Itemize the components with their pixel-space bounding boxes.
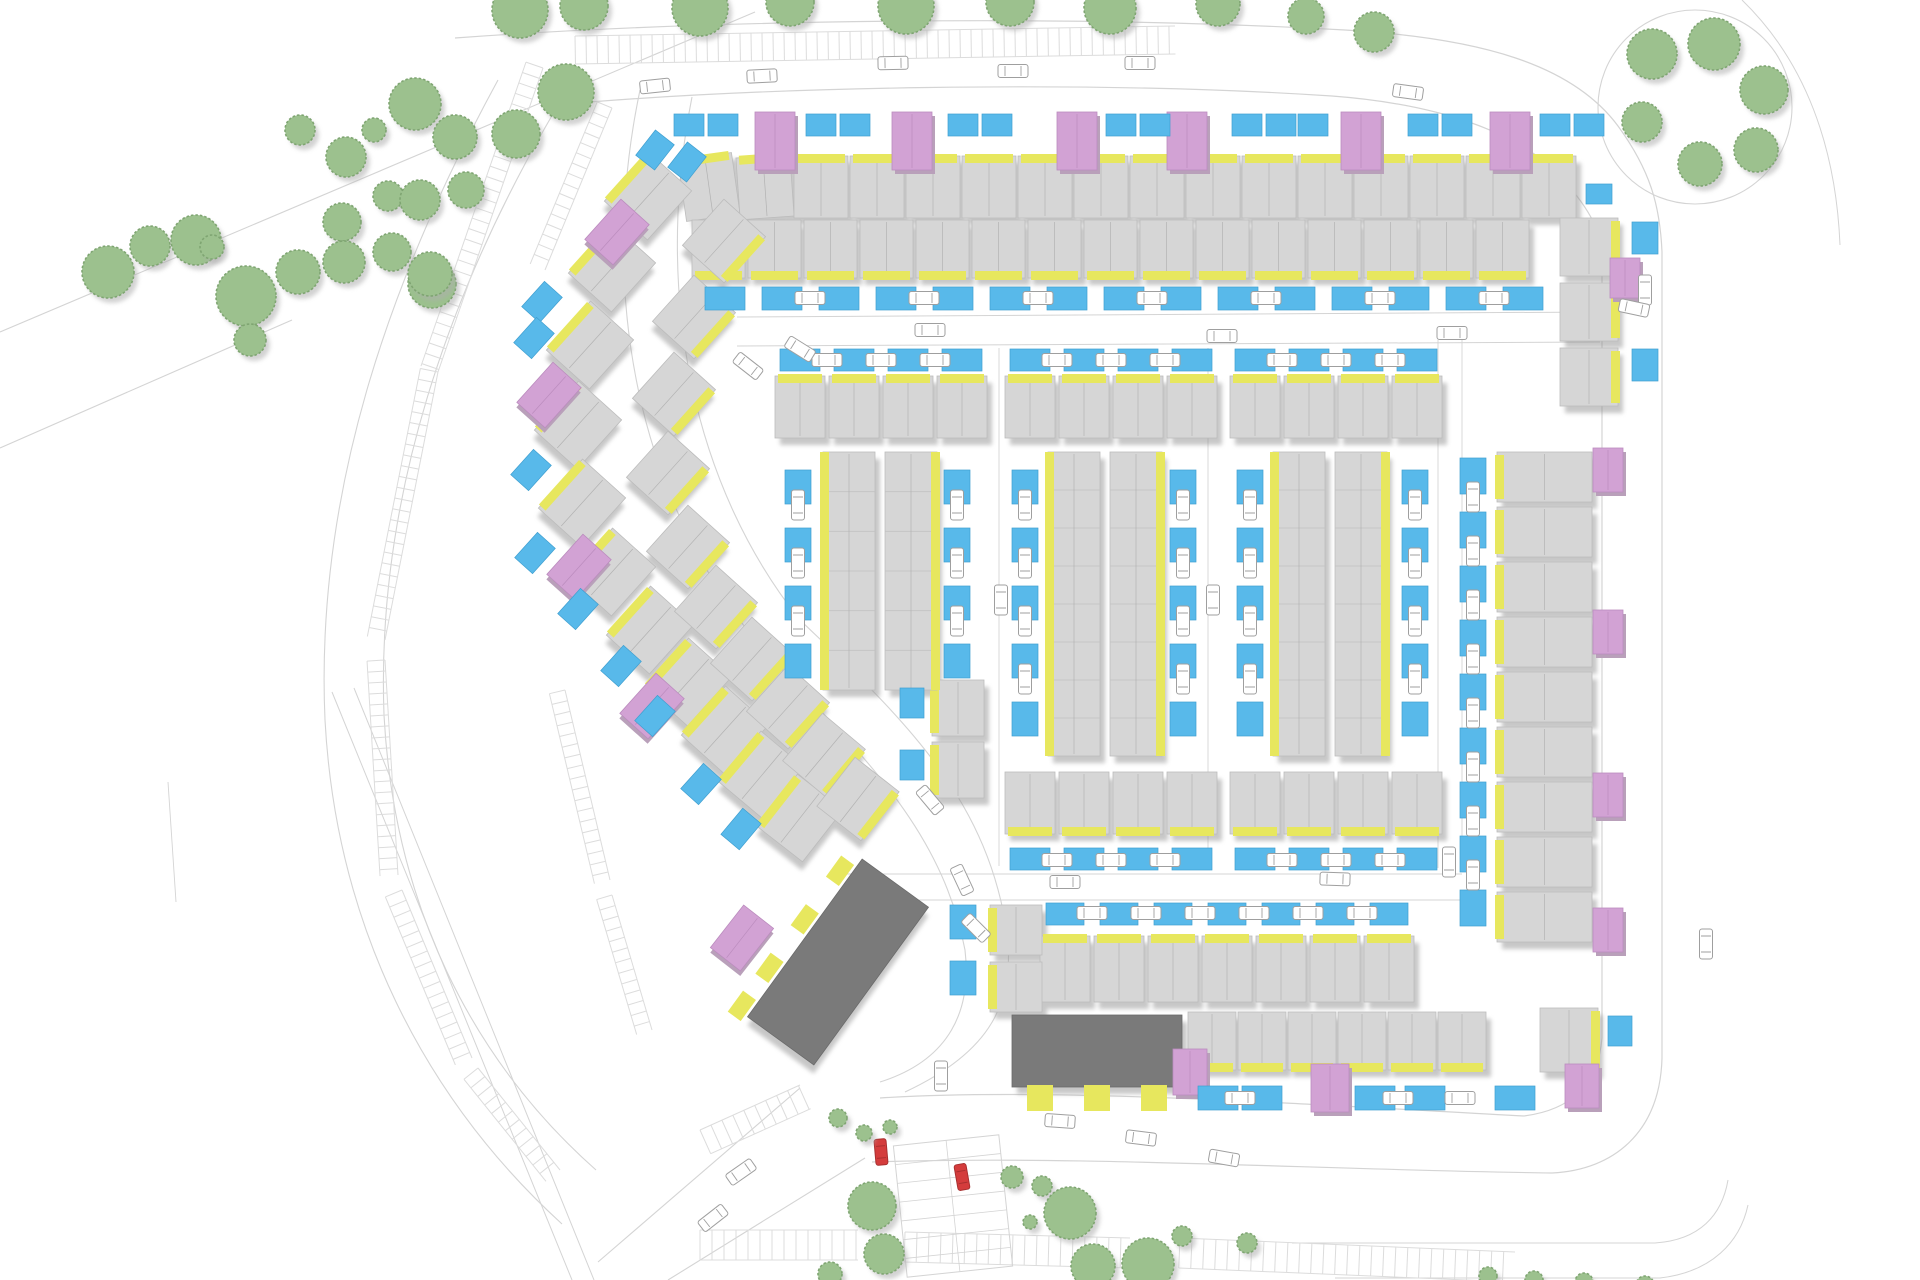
parking-comb-cell (580, 143, 595, 149)
parking-comb-cell (551, 214, 566, 220)
parking-comb-cell (964, 1234, 965, 1264)
entrance-strip (1341, 374, 1385, 383)
parking-bay (1170, 702, 1196, 736)
parking-comb-cell (557, 722, 573, 726)
house-block (1167, 374, 1217, 438)
parking-comb-cell (1060, 1236, 1061, 1266)
parking-comb (549, 690, 610, 884)
parking-comb-cell (388, 530, 406, 533)
parking-comb-edge (575, 54, 1175, 64)
house-block (1140, 220, 1193, 280)
parking-comb-cell (432, 1002, 449, 1009)
terrace-block (1110, 452, 1165, 756)
house-block (1113, 374, 1163, 438)
entrance-strip (1151, 934, 1195, 943)
parking-comb-cell (485, 1094, 499, 1105)
entrance-strip (1591, 1011, 1600, 1069)
car (1177, 664, 1190, 694)
car (1409, 606, 1422, 636)
car-body (1019, 606, 1032, 636)
parking-comb-cell (567, 765, 583, 769)
house-block (804, 220, 857, 280)
house-block (972, 220, 1025, 280)
entrance-strip (863, 271, 910, 280)
parking-comb-cell (390, 520, 408, 523)
parking-bay (1298, 114, 1328, 136)
car-body (1019, 664, 1032, 694)
car-body (1375, 854, 1405, 867)
parking-comb-cell (572, 786, 588, 790)
parking-bay (514, 317, 555, 358)
parking-comb-cell (622, 979, 637, 984)
entrance-strip (1495, 510, 1504, 554)
tree (538, 64, 594, 120)
car (951, 606, 964, 636)
house-block (632, 352, 715, 436)
parking-comb-cell (560, 733, 576, 737)
car (1443, 847, 1456, 877)
house-block (860, 220, 913, 280)
parking-comb-cell (1263, 1242, 1264, 1272)
parking-comb-cell (385, 890, 402, 897)
car (1445, 1092, 1475, 1105)
parking-comb-cell (399, 476, 417, 479)
house-block (1388, 1012, 1436, 1072)
entrance-strip (1143, 271, 1190, 280)
parking-comb (575, 26, 1175, 64)
parking-comb-cell (398, 920, 415, 927)
car (1467, 860, 1480, 890)
parking-comb-cell (397, 487, 415, 490)
car (1383, 1092, 1413, 1105)
road-line (168, 782, 176, 902)
parking-comb-cell (634, 1022, 649, 1027)
parking-comb-cell (526, 62, 543, 68)
car-body (1293, 907, 1323, 920)
car-body (1267, 854, 1297, 867)
car (878, 56, 908, 70)
tree (1032, 1176, 1052, 1196)
parking-comb-cell (587, 851, 603, 855)
parking-comb-cell (369, 627, 387, 630)
car-body (1700, 929, 1713, 959)
car (1177, 548, 1190, 578)
car-body (1467, 644, 1480, 674)
car (1392, 83, 1424, 100)
entrance-strip (1495, 785, 1504, 829)
parking-bay (948, 114, 978, 136)
house-block (1256, 934, 1306, 1002)
car (874, 1139, 888, 1166)
tree (829, 1109, 847, 1127)
car (1409, 548, 1422, 578)
house-block (988, 905, 1042, 955)
car-body (951, 548, 964, 578)
parking-comb-cell (376, 803, 394, 804)
house-block (1113, 772, 1163, 836)
car-body (1375, 354, 1405, 367)
parking-bay (1012, 702, 1038, 736)
car-body (1365, 292, 1395, 305)
parking-comb-cell (390, 900, 407, 907)
road-line (598, 1088, 800, 1262)
car (812, 354, 842, 367)
entrance-strip (1233, 374, 1277, 383)
entrance-strip (1381, 452, 1390, 756)
house-block (1040, 934, 1090, 1002)
entrance-strip (832, 374, 876, 383)
entrance-strip (1241, 1063, 1283, 1072)
house-block (1495, 672, 1592, 722)
entrance-strip (1062, 374, 1106, 383)
entrance-strip (975, 271, 1022, 280)
tree (818, 1262, 842, 1280)
car-body (1639, 275, 1652, 305)
tree (1001, 1166, 1023, 1188)
parking-bay (1632, 349, 1658, 381)
house-block (1202, 934, 1252, 1002)
car (1479, 292, 1509, 305)
parking-comb-cell (422, 364, 439, 370)
car (1244, 548, 1257, 578)
car-body (812, 354, 842, 367)
car (1375, 854, 1405, 867)
car (866, 354, 896, 367)
parking-comb-cell (1431, 1249, 1432, 1279)
car (1267, 854, 1297, 867)
entrance-strip (778, 374, 822, 383)
parking-comb-edge (905, 1232, 1130, 1238)
parking-comb-cell (393, 509, 411, 512)
parking-comb-cell (1299, 1243, 1300, 1273)
house-block (1310, 934, 1360, 1002)
parking-comb-cell (445, 1032, 462, 1039)
entrance-strip (988, 908, 997, 952)
car (1150, 354, 1180, 367)
parking-comb-cell (429, 343, 446, 349)
apartment-entrance-tab (1141, 1085, 1167, 1111)
parking-comb-cell (376, 595, 394, 598)
parking-comb-cell (367, 660, 385, 661)
car-body (1443, 847, 1456, 877)
entrance-strip (1116, 827, 1160, 836)
parking-comb-cell (1227, 1240, 1228, 1270)
car-body (639, 78, 670, 94)
car-body (1244, 664, 1257, 694)
car (697, 1204, 729, 1233)
car (1437, 327, 1467, 340)
car (1267, 354, 1297, 367)
terrace-block (1335, 452, 1390, 756)
house-block (1560, 348, 1620, 406)
parking-bay (1540, 114, 1570, 136)
parking-comb-cell (1383, 1247, 1384, 1277)
tree (1237, 1233, 1257, 1253)
parking-comb-cell (512, 104, 529, 110)
parking-comb-cell (461, 249, 478, 255)
car (1023, 292, 1053, 305)
car-body (1239, 907, 1269, 920)
house-block (1308, 220, 1361, 280)
parking-bay (944, 644, 970, 678)
parking-bay (785, 644, 811, 678)
entrance-strip (1008, 374, 1052, 383)
car (1042, 354, 1072, 367)
parking-bay (1442, 114, 1472, 136)
house-block (1495, 837, 1592, 887)
parking-comb-cell (436, 1012, 453, 1019)
car (1700, 929, 1713, 959)
parking-comb-cell (377, 825, 395, 826)
parking-bay (900, 688, 924, 718)
parking-bay (1408, 114, 1438, 136)
car-body (1096, 354, 1126, 367)
car (954, 1163, 970, 1191)
entrance-strip (1205, 934, 1249, 943)
entrance-strip (1097, 934, 1141, 943)
parking-comb-cell (403, 455, 421, 458)
parking-comb-cell (1371, 1246, 1372, 1276)
site-plan (0, 0, 1920, 1280)
tree (1622, 102, 1662, 142)
parking-comb-cell (372, 748, 390, 749)
parking-comb-cell (1048, 1236, 1049, 1266)
parking-comb-edge (575, 26, 1175, 36)
entrance-strip (930, 745, 939, 795)
tree (389, 78, 441, 130)
parking-comb-cell (538, 244, 553, 250)
car (915, 324, 945, 337)
house-block (794, 154, 848, 218)
car-body (1467, 698, 1480, 728)
terrace-block (820, 452, 875, 690)
car-body (1177, 664, 1190, 694)
parking-comb-cell (1311, 1244, 1312, 1274)
road-line (332, 692, 572, 1280)
tree (216, 266, 276, 326)
car (792, 606, 805, 636)
car-body (866, 354, 896, 367)
house-block (1242, 154, 1296, 218)
parking-bay (708, 114, 738, 136)
car (792, 490, 805, 520)
entrance-strip (807, 271, 854, 280)
parking-comb-cell (603, 916, 618, 921)
car (1375, 354, 1405, 367)
parking-comb-cell (1323, 1244, 1324, 1274)
parking-comb-cell (416, 390, 434, 393)
parking-bay (1574, 114, 1604, 136)
tree (130, 226, 170, 266)
car-body (1019, 490, 1032, 520)
entrance-strip (1255, 271, 1302, 280)
house-block (988, 962, 1042, 1012)
parking-comb (385, 890, 472, 1065)
car-body (1409, 606, 1422, 636)
parking-comb (367, 369, 438, 640)
parking-comb-cell (433, 332, 450, 338)
parking-comb-cell (1215, 1240, 1216, 1270)
parking-comb (700, 1230, 858, 1260)
car (1225, 1092, 1255, 1105)
house-block (1392, 772, 1442, 836)
tree (864, 1234, 904, 1274)
entrance-strip (1441, 1063, 1483, 1072)
entrance-strip (1395, 827, 1439, 836)
house-block (1495, 507, 1592, 557)
entrance-strip (1341, 827, 1385, 836)
car (1019, 664, 1032, 694)
tree (276, 250, 320, 294)
parking-comb-cell (378, 847, 396, 848)
parking-comb-cell (395, 498, 413, 501)
car-body (1383, 1092, 1413, 1105)
parking-bay (982, 114, 1012, 136)
car-body (1050, 876, 1080, 889)
parking-comb-cell (568, 173, 583, 179)
car-body (1251, 292, 1281, 305)
parking-comb-cell (590, 861, 606, 865)
house-block (1540, 1008, 1600, 1072)
car-body (792, 548, 805, 578)
parking-comb-cell (1203, 1239, 1204, 1269)
car-body (1409, 490, 1422, 520)
entrance-strip (1259, 934, 1303, 943)
car-body (920, 354, 950, 367)
car (1019, 490, 1032, 520)
house-block (1495, 892, 1592, 942)
car-body (732, 352, 764, 381)
house-block (1167, 772, 1217, 836)
house-block (1230, 772, 1280, 836)
parking-bay (1608, 1016, 1632, 1046)
car (951, 548, 964, 578)
car (1096, 354, 1126, 367)
house-block (1338, 1012, 1386, 1072)
tree (1288, 0, 1324, 34)
parking-comb-cell (1000, 1235, 1001, 1265)
car-body (792, 490, 805, 520)
house-block (1284, 772, 1334, 836)
car (1019, 606, 1032, 636)
parking-comb-cell (440, 312, 457, 318)
parking-comb-edge (565, 690, 610, 880)
parking-comb-cell (619, 969, 634, 974)
house-block (1084, 220, 1137, 280)
parking-bay (705, 287, 745, 310)
parking-comb-cell (464, 1068, 478, 1079)
parking-comb-cell (576, 153, 591, 159)
parking-comb-cell (612, 948, 627, 953)
parking-comb-cell (572, 163, 587, 169)
car (920, 354, 950, 367)
car (1467, 698, 1480, 728)
car-body (1045, 1113, 1076, 1128)
parking-comb-cell (722, 1120, 733, 1144)
apartment-block (728, 848, 929, 1071)
car (1207, 585, 1220, 615)
parking-comb-cell (628, 1000, 643, 1005)
car-body (1042, 854, 1072, 867)
parking-comb-cell (564, 183, 579, 189)
entrance-strip (1287, 374, 1331, 383)
house-block (1005, 772, 1055, 836)
parking-comb-cell (952, 1233, 953, 1263)
entrance-strip (930, 683, 939, 733)
apartment-block (1012, 1015, 1182, 1111)
car (1185, 907, 1215, 920)
car (1244, 606, 1257, 636)
car (1244, 664, 1257, 694)
house-block (1338, 772, 1388, 836)
car (1467, 590, 1480, 620)
parking-comb-cell (410, 422, 428, 425)
tree (1627, 29, 1677, 79)
parking-comb-cell (512, 1128, 526, 1139)
parking-comb-cell (425, 353, 442, 359)
house-block (626, 431, 709, 515)
car-body (1225, 1092, 1255, 1105)
car-body (1392, 83, 1424, 100)
parking-comb-cell (1407, 1248, 1408, 1278)
parking-comb-cell (375, 792, 393, 793)
car-body (935, 1061, 948, 1091)
parking-comb-cell (1347, 1245, 1348, 1275)
car-body (1177, 606, 1190, 636)
car (998, 65, 1028, 78)
car-body (1177, 548, 1190, 578)
car (935, 1061, 948, 1091)
parking-comb-cell (940, 1233, 941, 1263)
tree (1740, 66, 1788, 114)
house-block (1284, 374, 1334, 438)
car-body (1150, 854, 1180, 867)
entrance-strip (1270, 452, 1279, 756)
parking-bay (515, 532, 556, 573)
parking-comb-cell (631, 1011, 646, 1016)
car-body (1467, 860, 1480, 890)
road-line (1292, 1180, 1728, 1243)
car (1137, 292, 1167, 305)
car-body (1131, 907, 1161, 920)
car (995, 585, 1008, 615)
entrance-strip (797, 154, 845, 163)
terrace-block (1270, 452, 1325, 756)
car-body (1347, 907, 1377, 920)
parking-comb-cell (1024, 1235, 1025, 1265)
tree (448, 172, 484, 208)
car (1409, 664, 1422, 694)
parking-comb-cell (766, 1100, 777, 1124)
parking-comb-cell (711, 1125, 722, 1149)
parking-comb-cell (609, 937, 624, 942)
entrance-strip (1116, 374, 1160, 383)
car-body (1023, 292, 1053, 305)
house-block (1476, 220, 1529, 280)
parking-comb-cell (419, 971, 436, 978)
car-body (1137, 292, 1167, 305)
parking-comb-cell (440, 1022, 457, 1029)
parking-comb-cell (597, 895, 612, 900)
parking-bay (1632, 222, 1658, 254)
tree (408, 252, 452, 296)
car-body (1409, 664, 1422, 694)
parking-comb-cell (744, 1110, 755, 1134)
car-body (998, 65, 1028, 78)
entrance-strip (1391, 1063, 1433, 1072)
house-block (962, 154, 1016, 218)
parking-comb-cell (469, 228, 486, 234)
